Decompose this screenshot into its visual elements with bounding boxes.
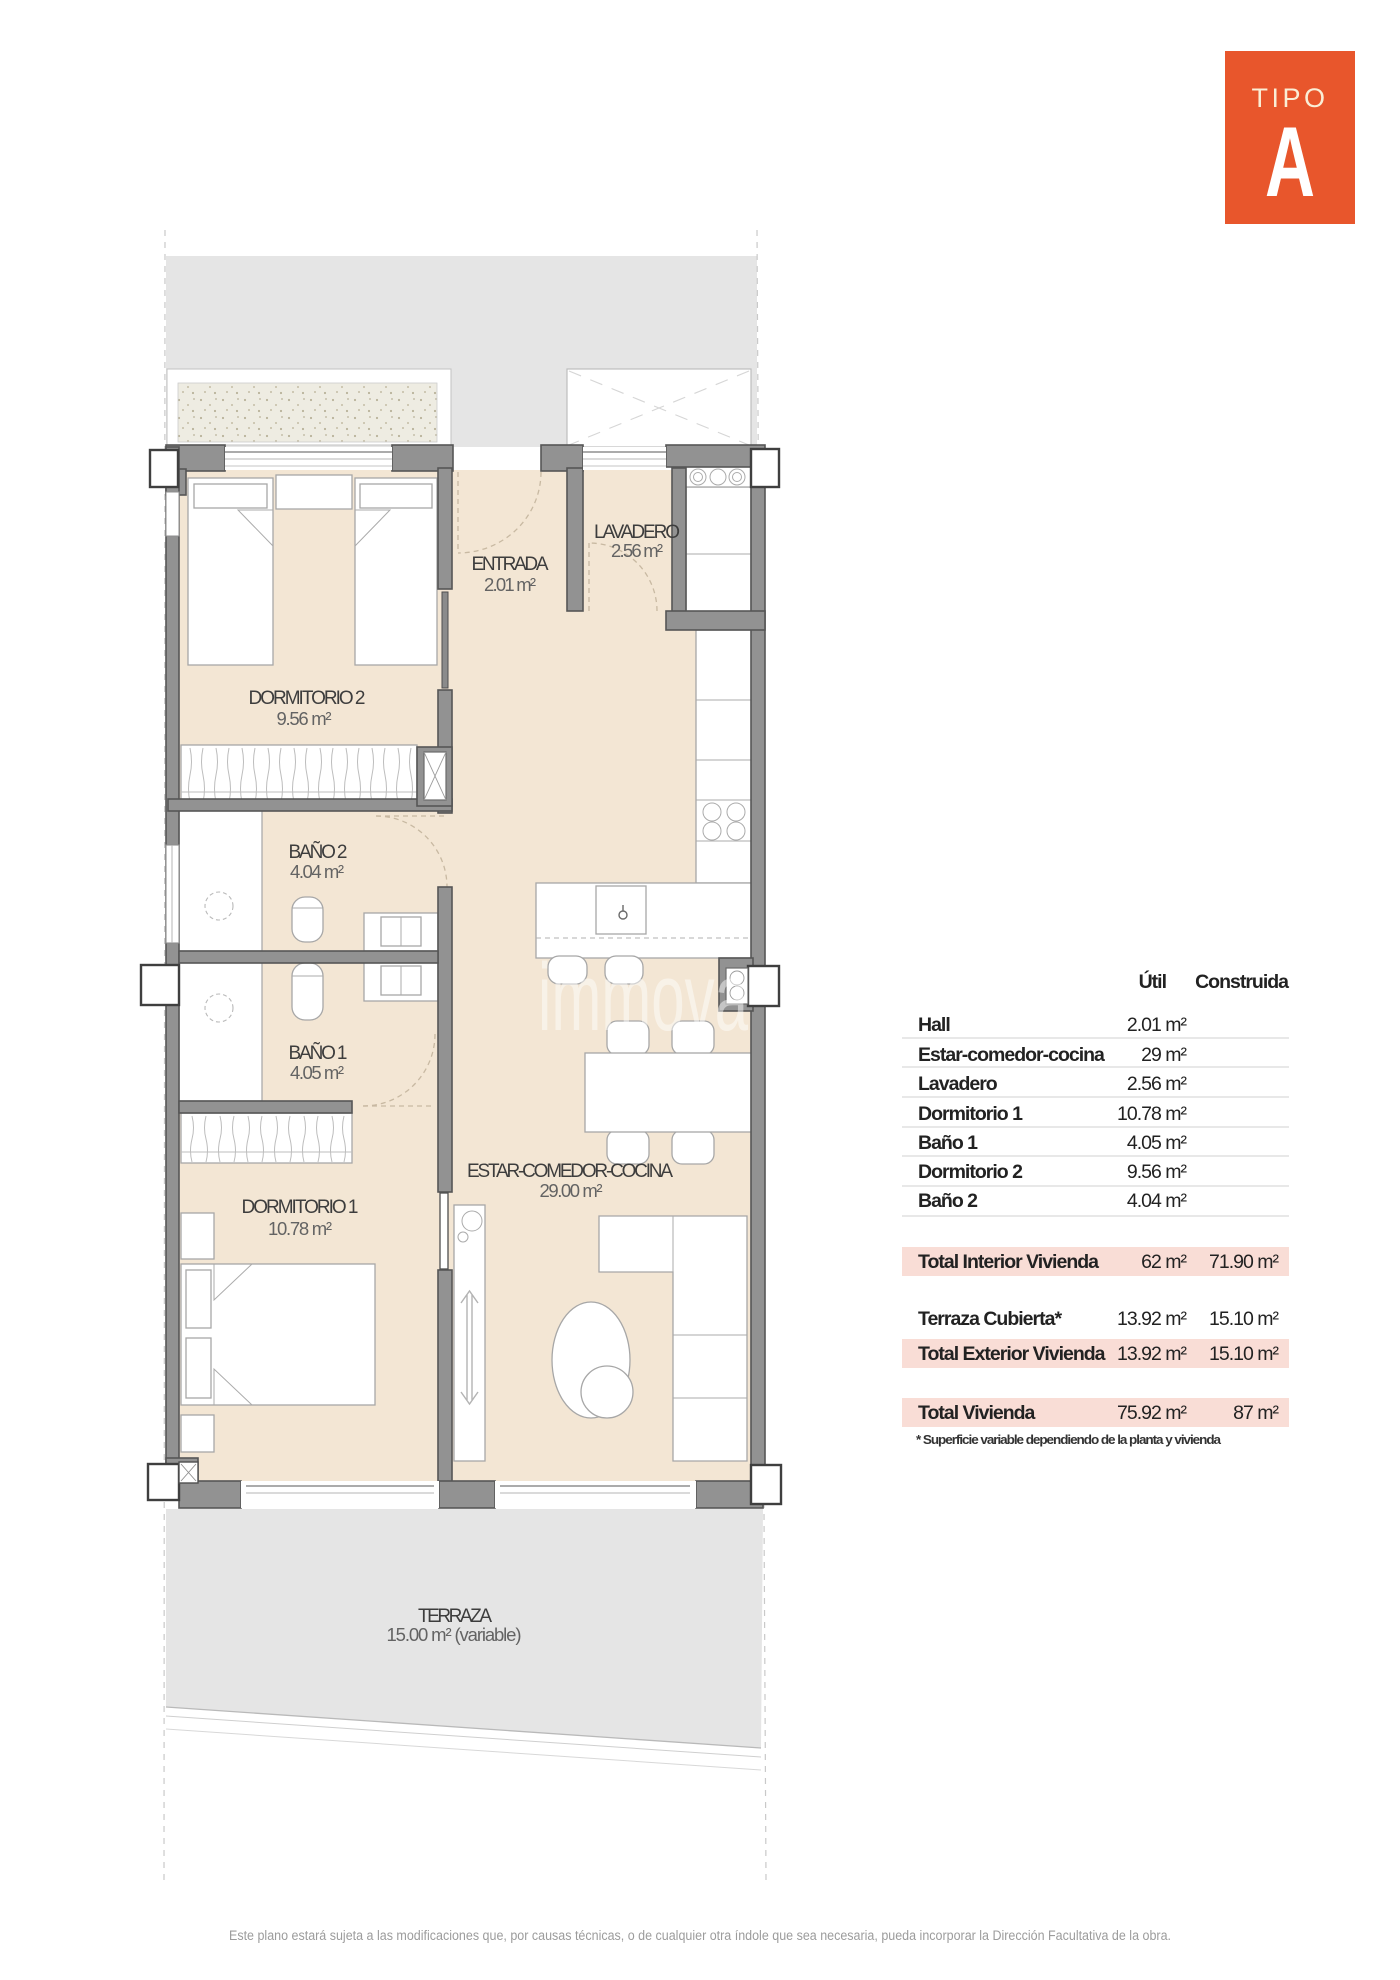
svg-text:4.05 m²: 4.05 m²	[1127, 1132, 1188, 1154]
svg-text:13.92 m²: 13.92 m²	[1117, 1308, 1187, 1330]
svg-text:* Superficie variable dependie: * Superficie variable dependiendo de la …	[916, 1432, 1222, 1447]
svg-text:Hall: Hall	[918, 1014, 950, 1036]
svg-text:ENTRADA: ENTRADA	[472, 554, 549, 575]
svg-text:BAÑO 1: BAÑO 1	[289, 1042, 348, 1064]
svg-text:4.04 m²: 4.04 m²	[290, 861, 344, 882]
svg-text:immova: immova	[538, 944, 748, 1051]
svg-text:A: A	[1265, 106, 1315, 217]
svg-text:Terraza Cubierta*: Terraza Cubierta*	[918, 1308, 1062, 1330]
svg-text:Baño 2: Baño 2	[918, 1190, 978, 1212]
svg-text:15.10 m²: 15.10 m²	[1209, 1308, 1279, 1330]
svg-text:75.92 m²: 75.92 m²	[1117, 1402, 1187, 1424]
svg-text:2.56 m²: 2.56 m²	[1127, 1073, 1188, 1095]
svg-text:2.01 m²: 2.01 m²	[1127, 1014, 1188, 1036]
svg-text:13.92 m²: 13.92 m²	[1117, 1343, 1187, 1365]
svg-text:62 m²: 62 m²	[1141, 1251, 1187, 1273]
svg-text:ESTAR-COMEDOR-COCINA: ESTAR-COMEDOR-COCINA	[467, 1161, 673, 1182]
svg-text:DORMITORIO 1: DORMITORIO 1	[242, 1197, 359, 1218]
svg-text:DORMITORIO 2: DORMITORIO 2	[249, 688, 366, 709]
svg-text:Total Exterior Vivienda: Total Exterior Vivienda	[918, 1343, 1106, 1365]
svg-text:Este plano estará sujeta a las: Este plano estará sujeta a las modificac…	[229, 1928, 1171, 1943]
svg-text:4.05 m²: 4.05 m²	[290, 1062, 344, 1083]
svg-text:2.01 m²: 2.01 m²	[484, 574, 536, 595]
svg-text:Baño 1: Baño 1	[918, 1132, 978, 1154]
svg-text:4.04 m²: 4.04 m²	[1127, 1190, 1188, 1212]
svg-text:Dormitorio 2: Dormitorio 2	[918, 1161, 1023, 1183]
svg-text:15.00 m² (variable): 15.00 m² (variable)	[387, 1624, 522, 1645]
svg-text:71.90 m²: 71.90 m²	[1209, 1251, 1279, 1273]
svg-text:87 m²: 87 m²	[1233, 1402, 1279, 1424]
svg-text:Lavadero: Lavadero	[918, 1073, 998, 1095]
svg-text:Construida: Construida	[1195, 971, 1289, 993]
svg-text:Total Interior Vivienda: Total Interior Vivienda	[918, 1251, 1099, 1273]
svg-text:2.56 m²: 2.56 m²	[611, 540, 663, 561]
svg-text:29 m²: 29 m²	[1141, 1044, 1187, 1066]
svg-text:10.78 m²: 10.78 m²	[1117, 1103, 1187, 1125]
svg-text:9.56 m²: 9.56 m²	[1127, 1161, 1188, 1183]
svg-text:29.00 m²: 29.00 m²	[540, 1180, 603, 1201]
svg-text:Útil: Útil	[1139, 969, 1167, 993]
svg-text:10.78 m²: 10.78 m²	[268, 1218, 332, 1239]
svg-text:Total Vivienda: Total Vivienda	[918, 1402, 1036, 1424]
svg-text:Dormitorio 1: Dormitorio 1	[918, 1103, 1023, 1125]
svg-text:Estar-comedor-cocina: Estar-comedor-cocina	[918, 1044, 1105, 1066]
svg-text:15.10 m²: 15.10 m²	[1209, 1343, 1279, 1365]
svg-text:9.56 m²: 9.56 m²	[277, 708, 332, 729]
svg-text:BAÑO 2: BAÑO 2	[289, 841, 348, 863]
